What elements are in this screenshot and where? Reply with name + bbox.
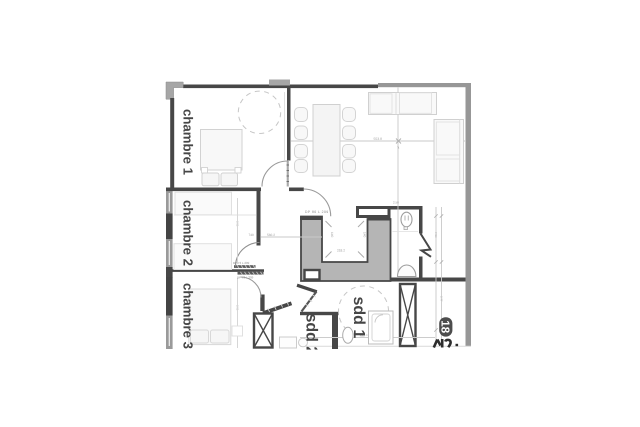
svg-text:740: 740 bbox=[249, 233, 255, 237]
svg-text:18: 18 bbox=[439, 320, 451, 333]
svg-text:560.2: 560.2 bbox=[267, 233, 275, 237]
svg-text:253.2: 253.2 bbox=[337, 249, 345, 253]
svg-text:DP 80 L 209: DP 80 L 209 bbox=[305, 210, 329, 214]
svg-text:BP 73 L 209: BP 73 L 209 bbox=[237, 275, 254, 279]
svg-text:chambre 2: chambre 2 bbox=[181, 200, 196, 266]
svg-text:2.77: 2.77 bbox=[440, 296, 444, 302]
svg-text:sdd 2: sdd 2 bbox=[303, 314, 320, 356]
svg-text:chambre 3: chambre 3 bbox=[181, 283, 196, 349]
svg-text:140: 140 bbox=[363, 232, 367, 238]
svg-text:140: 140 bbox=[330, 232, 334, 238]
svg-text:553.8: 553.8 bbox=[374, 137, 383, 141]
svg-text:chambre 1: chambre 1 bbox=[181, 109, 196, 175]
svg-text:7.94: 7.94 bbox=[434, 232, 438, 238]
svg-text:sdd 1: sdd 1 bbox=[350, 297, 367, 339]
svg-text:2.50: 2.50 bbox=[393, 201, 399, 205]
svg-text:BP 73 L 209: BP 73 L 209 bbox=[233, 261, 250, 265]
